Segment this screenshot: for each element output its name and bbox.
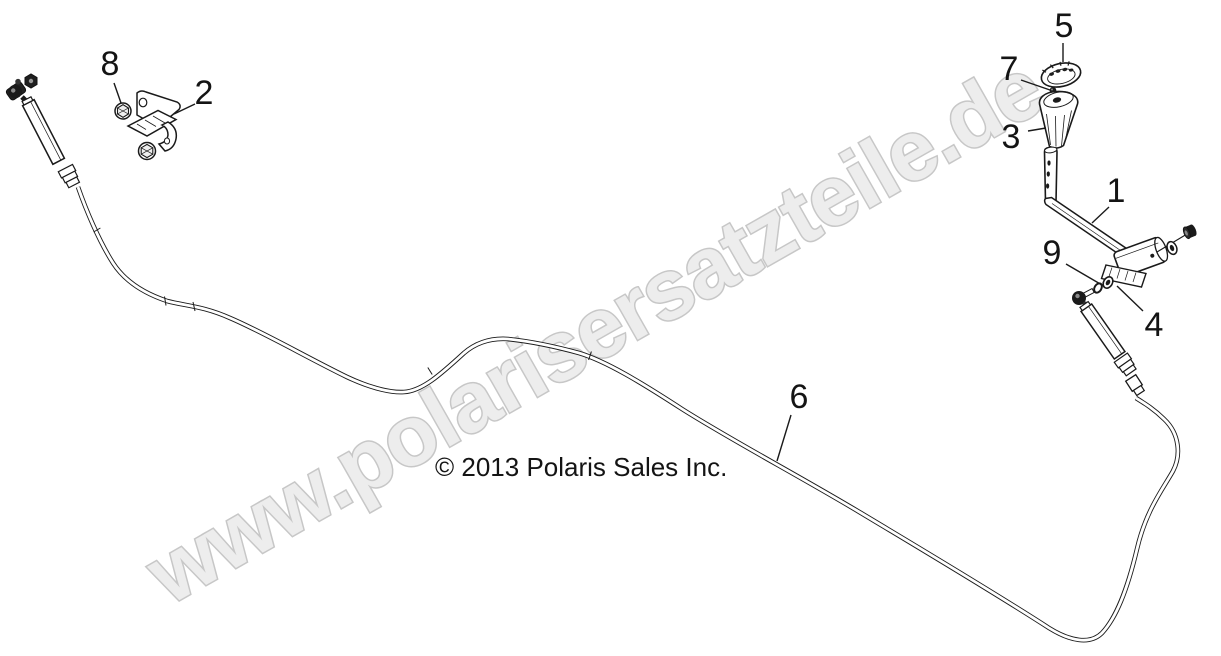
callout-number: 5: [1055, 7, 1074, 45]
hex-nut-icon: [1182, 223, 1198, 239]
mounting-bracket-assembly: [115, 91, 180, 160]
callout-9: 9: [1043, 234, 1102, 285]
callout-6: 6: [777, 378, 808, 461]
mounting-bracket: [128, 91, 180, 151]
cable-end-rear: [1072, 275, 1146, 396]
callout-number: 4: [1145, 306, 1164, 344]
callout-number: 3: [1002, 118, 1021, 156]
flange-bolt-icon: [115, 103, 131, 119]
callout-1: 1: [1092, 172, 1125, 223]
callout-leader-line: [777, 415, 791, 461]
knob-cap: [1039, 58, 1083, 91]
callout-number: 6: [790, 378, 809, 416]
flange-bolt-icon: [139, 143, 156, 160]
cable-barrel: [1079, 301, 1125, 359]
callout-number: 2: [195, 74, 214, 112]
parts-diagram: www.polarisersatzteile.de © 2013 Polaris…: [0, 0, 1221, 656]
callout-number: 9: [1043, 234, 1062, 272]
callout-5: 5: [1055, 7, 1074, 62]
callout-4: 4: [1117, 286, 1163, 344]
jam-nut-icon: [25, 74, 37, 88]
callout-leader-line: [1117, 286, 1143, 311]
callout-number: 1: [1107, 172, 1126, 210]
callouts-layer: 123456789: [101, 7, 1164, 461]
copyright-text: © 2013 Polaris Sales Inc.: [435, 452, 727, 482]
cable-bellows: [58, 164, 81, 188]
cable-barrel: [21, 96, 65, 164]
cable-adjuster: [1126, 375, 1146, 397]
callout-number: 8: [101, 45, 120, 83]
cable-end-front: [3, 74, 81, 189]
watermark-text: www.polarisersatzteile.de: [131, 40, 1058, 623]
callout-8: 8: [101, 45, 121, 103]
parts-diagram-page: www.polarisersatzteile.de © 2013 Polaris…: [0, 0, 1221, 656]
callout-leader-line: [114, 83, 121, 103]
shift-knob: [1039, 89, 1077, 148]
callout-leader-line: [1066, 264, 1102, 285]
callout-number: 7: [1000, 50, 1019, 88]
